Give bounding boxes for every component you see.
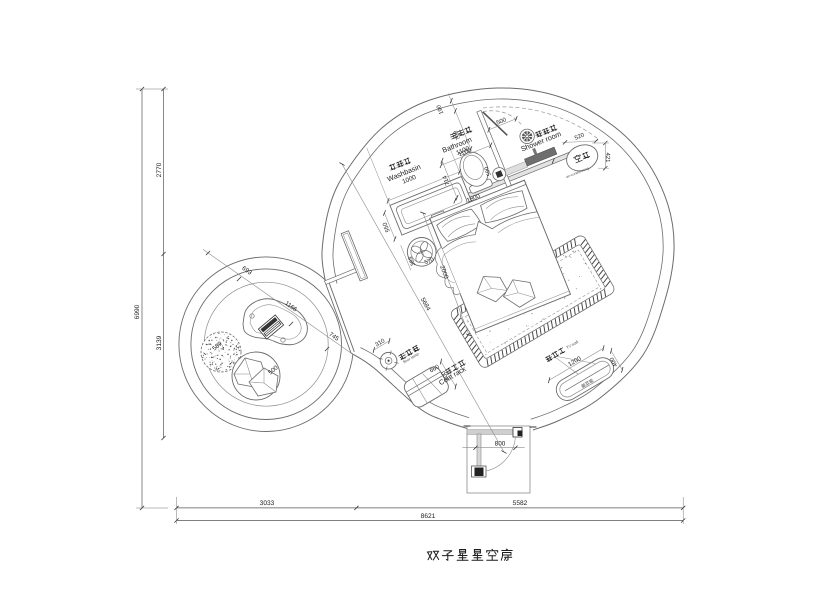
svg-text:8621: 8621 <box>421 513 436 520</box>
svg-text:3139: 3139 <box>156 335 163 350</box>
svg-text:2770: 2770 <box>156 162 163 177</box>
svg-text:800: 800 <box>495 441 506 448</box>
svg-text:421: 421 <box>604 152 611 163</box>
svg-text:3033: 3033 <box>260 500 275 507</box>
svg-text:5582: 5582 <box>513 500 528 507</box>
svg-text:6990: 6990 <box>134 304 141 319</box>
